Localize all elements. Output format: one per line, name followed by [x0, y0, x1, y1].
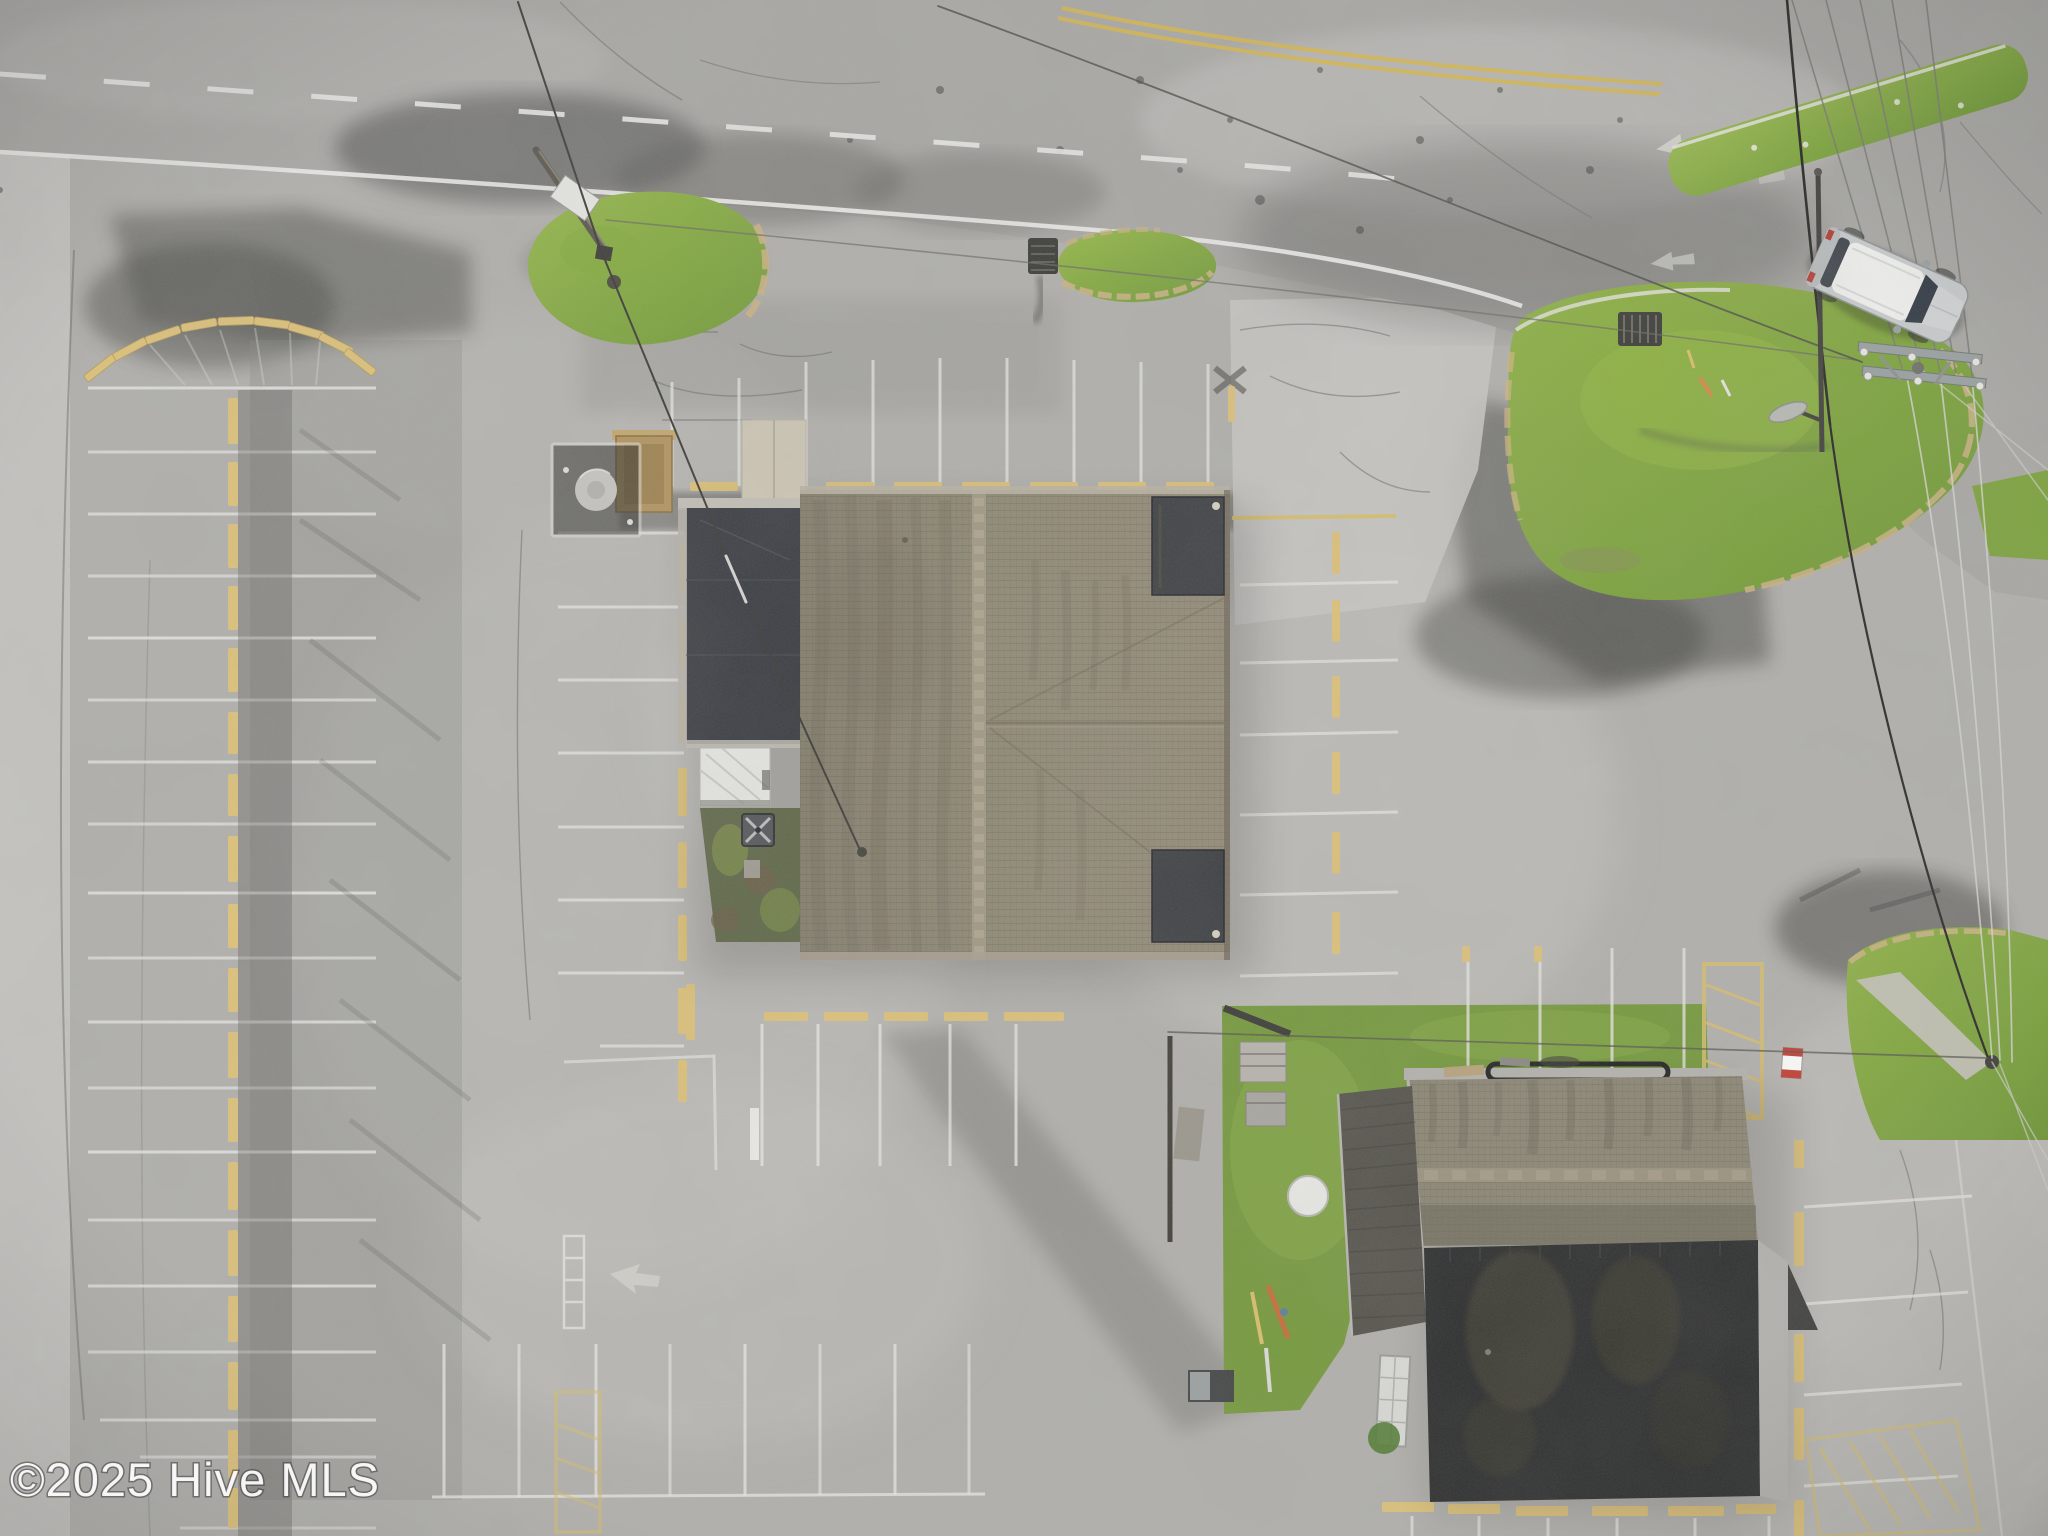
watermark-text: ©2025 Hive MLS	[10, 1453, 380, 1506]
vignette	[0, 0, 2048, 1536]
aerial-photo: ©2025 Hive MLS	[0, 0, 2048, 1536]
